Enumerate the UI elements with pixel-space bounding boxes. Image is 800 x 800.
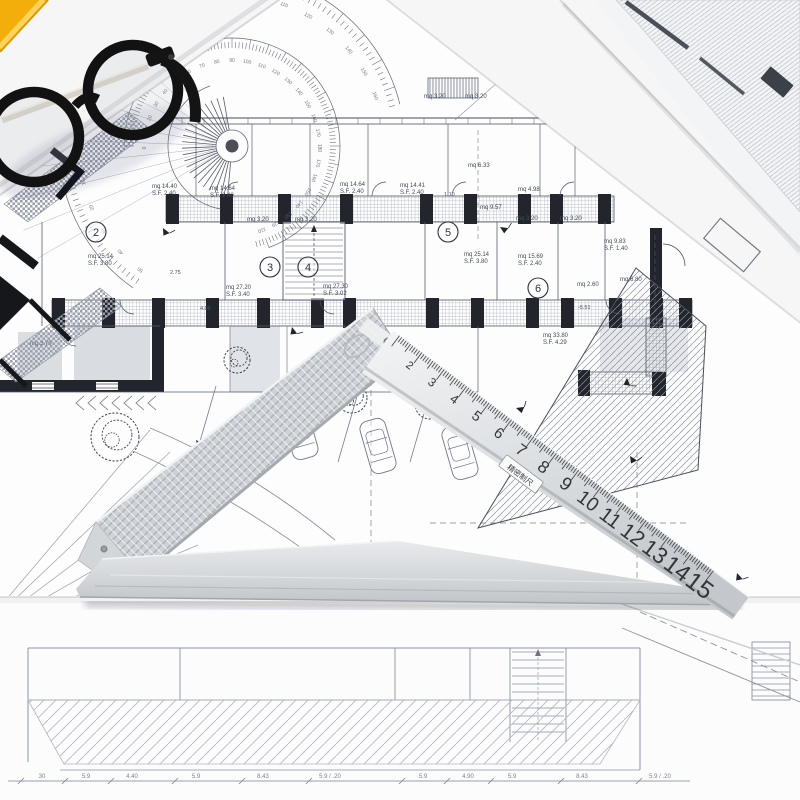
left-lens [0,92,79,182]
sheet-bottom-blueprint: 305.94.405.98.435.9 / .205.94.905.98.435… [0,596,800,800]
area-label-mq: mq 9.83 [604,239,626,245]
area-label-sf: S.F. 3.02 [323,291,347,297]
room-number: 2 [93,227,99,239]
wall-post [598,194,611,224]
area-label-mq: mq 3.20 [516,216,538,222]
area-label-mq: mq 15.69 [518,254,544,260]
area-label-mq: mq 14.64 [210,186,236,192]
dimension-label: 5.9 / .20 [319,774,341,780]
area-label-mq: mq 3.20 [247,217,269,223]
area-label-sf: S.F. 2.40 [518,261,542,267]
dimension-label: 5.9 [419,774,428,780]
wall-hatch-band [166,196,614,222]
area-label-mq: mq 3.20 [424,94,446,100]
dimension-label: 5.9 [82,774,91,780]
window-gap [32,382,54,390]
wall-post [206,298,219,328]
area-label-mq: mq 6.33 [468,163,490,169]
wall-post [526,298,539,328]
area-label-mq: mq 9.57 [480,205,502,211]
area-label-sf: S.F. 1.40 [604,246,628,252]
area-label-mq: mq 27.30 [323,284,349,290]
small-dim: 4.05 [200,306,211,312]
area-label-sf: S.F. 2.40 [340,189,364,195]
wall-post [426,298,439,328]
area-label-sf: S.F. 3.80 [88,261,112,267]
screw [101,546,107,552]
area-label-mq: mq 3.20 [295,217,317,223]
small-dim: 1.10 [444,192,455,198]
protractor-degree: 90 [229,58,235,64]
room-number: 3 [267,262,273,274]
wall-post [311,298,324,328]
area-label-mq: mq 14.41 [400,183,426,189]
area-label-mq: mq 3.20 [465,94,487,100]
window-gap [96,382,118,390]
area-label-mq: mq 33.80 [543,333,569,339]
area-label-mq: mq 14.40 [152,184,178,190]
dimension-label: 4.90 [462,774,474,780]
dimension-label: 4.40 [126,774,138,780]
photo-blueprint-scene: 102030510152025 010203040506070809010011… [0,0,800,800]
area-label-sf: S.F. 3.80 [464,259,488,265]
wall-post [420,194,433,224]
wall-post [340,194,353,224]
wall-post [257,298,270,328]
wall-post [278,194,291,224]
wall-post [471,298,484,328]
dimension-label: 8.43 [576,774,588,780]
hinge-screw [168,54,174,60]
area-label-mq: mq 25.14 [88,254,114,260]
protractor-center [226,140,239,153]
dimension-label: 5.9 [192,774,201,780]
area-label-sf: S.F. 2.40 [400,190,424,196]
area-label-mq: mq 3.20 [560,216,582,222]
area-label-mq: mq 25.14 [464,252,490,258]
bottom-hatch-area [28,700,640,764]
area-label-mq: mq 14.64 [340,182,366,188]
wall-post [561,298,574,328]
dimension-label: 5.9 / .20 [649,774,671,780]
area-label-sf: S.F. 3.40 [226,292,250,298]
bottom-sheet-paper [0,596,800,800]
area-label-mq: mq 4.98 [518,187,540,193]
wall-post [464,194,477,224]
terrace-gray [230,326,280,392]
area-label-sf: S.F. 2.40 [152,191,176,197]
dimension-label: 5.9 [508,774,517,780]
small-dim: 2.75 [170,270,181,276]
room-number: 5 [445,227,451,239]
protractor-degree: 180 [316,144,322,153]
dimension-label: 8.43 [257,774,269,780]
area-label-mq: mq 27.20 [226,285,252,291]
area-label-sf: S.F. 2.40 [210,193,234,199]
area-label-sf: S.F. 4.29 [543,340,567,346]
area-label-mq: mq 6.80 [620,277,642,283]
room-number: 6 [535,283,541,295]
wall-post [166,194,179,224]
room-number: 4 [305,262,311,274]
wall-post [152,298,165,328]
small-dim: -5.51 [578,305,591,311]
scene-canvas: 102030510152025 010203040506070809010011… [0,0,800,800]
dimension-label: 30 [39,774,46,780]
area-label-mq: mq 2.60 [577,282,599,288]
